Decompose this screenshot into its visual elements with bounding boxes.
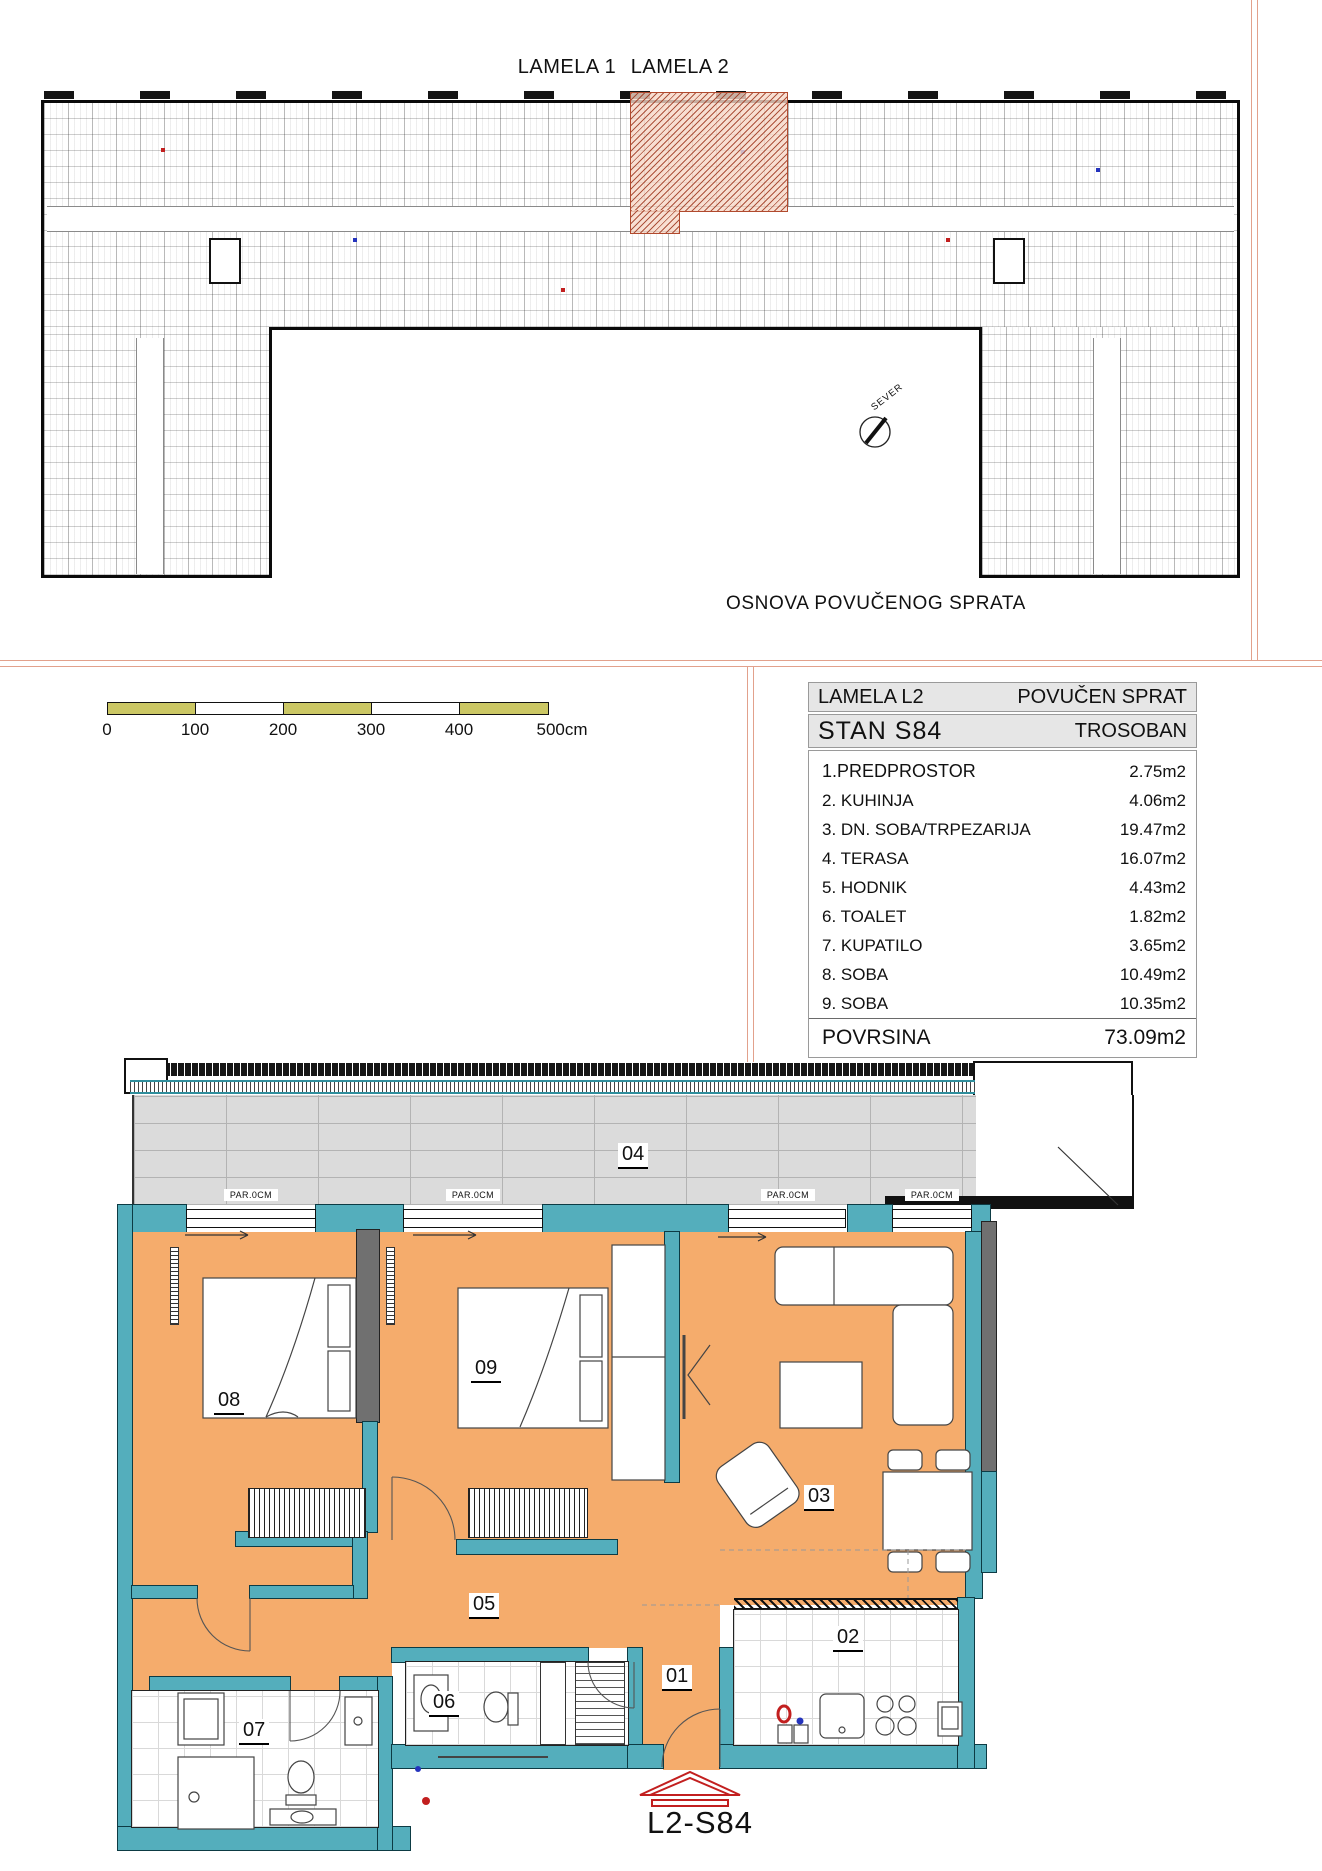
room-label-05: 05 [469, 1593, 499, 1619]
room-label-06: 06 [429, 1691, 459, 1717]
room-row: 9. SOBA10.35m2 [809, 989, 1196, 1018]
room-name: 2. KUHINJA [822, 786, 914, 815]
frame-line [753, 666, 754, 1062]
room-row: 2. KUHINJA4.06m2 [809, 786, 1196, 815]
room-label-08: 08 [214, 1389, 244, 1415]
room-row: 7. KUPATILO3.65m2 [809, 931, 1196, 960]
room-row: 4. TERASA16.07m2 [809, 844, 1196, 873]
room-label-04: 04 [618, 1143, 648, 1169]
room-row: 6. TOALET1.82m2 [809, 902, 1196, 931]
fixture-dot [161, 148, 165, 152]
apartment-info-table: LAMELA L2 POVUČEN SPRAT STAN S84 TROSOBA… [808, 682, 1197, 1058]
drawing-title: OSNOVA POVUČENOG SPRATA [700, 593, 1052, 615]
total-label: POVRSINA [822, 1026, 931, 1050]
total-row: POVRSINA 73.09m2 [809, 1018, 1196, 1057]
room-area: 10.35m2 [1120, 989, 1186, 1018]
scale-segment [371, 702, 461, 715]
frame-line [0, 660, 1322, 661]
furniture-layer [118, 1057, 1140, 1857]
room-area: 10.49m2 [1120, 960, 1186, 989]
fixture-dot [561, 288, 565, 292]
scale-tick-label: 300 [326, 720, 416, 740]
scale-tick-label: 500cm [507, 720, 617, 740]
room-row: 3. DN. SOBA/TRPEZARIJA19.47m2 [809, 815, 1196, 844]
room-label-07: 07 [239, 1719, 269, 1745]
room-name: 6. TOALET [822, 902, 906, 931]
scale-tick-label: 100 [150, 720, 240, 740]
room-name: 7. KUPATILO [822, 931, 922, 960]
room-label-09: 09 [471, 1357, 501, 1383]
fixture-dot [353, 238, 357, 242]
lamela-name: LAMELA L2 [818, 686, 924, 709]
sprat-name: POVUČEN SPRAT [1017, 686, 1187, 709]
corridor-right-wing [1093, 338, 1121, 574]
label-lamela-1: LAMELA 1 [517, 56, 617, 79]
stan-name: STAN S84 [818, 717, 942, 746]
frame-line [0, 666, 1322, 667]
room-area: 2.75m2 [1129, 757, 1186, 786]
fixture-dot [946, 238, 950, 242]
room-name: 9. SOBA [822, 989, 888, 1018]
apartment-plan: PAR.0CM PAR.0CM PAR.0CM PAR.0CM [118, 1057, 1140, 1857]
scale-tick-label: 0 [62, 720, 152, 740]
highlighted-unit-s84 [630, 92, 788, 212]
label-lamela-2: LAMELA 2 [630, 56, 730, 79]
fixture-dot [1096, 168, 1100, 172]
frame-line [1251, 0, 1252, 661]
room-row: 1.PREDPROSTOR2.75m2 [809, 757, 1196, 786]
apartment-type: TROSOBAN [1075, 720, 1187, 743]
room-name: 3. DN. SOBA/TRPEZARIJA [822, 815, 1031, 844]
room-area: 3.65m2 [1129, 931, 1186, 960]
table-header-row: LAMELA L2 POVUČEN SPRAT [808, 682, 1197, 712]
building-overview [41, 88, 1240, 580]
room-area: 1.82m2 [1129, 902, 1186, 931]
scale-segment [283, 702, 373, 715]
room-row: 5. HODNIK4.43m2 [809, 873, 1196, 902]
room-area: 19.47m2 [1120, 815, 1186, 844]
scale-segment [107, 702, 197, 715]
corridor-left-wing [136, 338, 164, 574]
room-name: 5. HODNIK [822, 873, 907, 902]
total-area: 73.09m2 [1104, 1026, 1186, 1050]
stair-core-right [993, 238, 1025, 284]
highlighted-unit-s84-extension [630, 210, 680, 234]
room-area: 4.43m2 [1129, 873, 1186, 902]
scale-tick-label: 200 [238, 720, 328, 740]
frame-line [747, 666, 748, 1062]
room-list: 1.PREDPROSTOR2.75m2 2. KUHINJA4.06m2 3. … [808, 750, 1197, 1058]
room-label-02: 02 [833, 1626, 863, 1652]
room-label-01: 01 [662, 1665, 692, 1691]
unit-code-label: L2-S84 [610, 1805, 790, 1841]
scale-segment [459, 702, 549, 715]
frame-line [1257, 0, 1258, 661]
scale-bar: 0 100 200 300 400 500cm [107, 702, 667, 747]
room-row: 8. SOBA10.49m2 [809, 960, 1196, 989]
room-area: 16.07m2 [1120, 844, 1186, 873]
table-header-row: STAN S84 TROSOBAN [808, 714, 1197, 748]
room-name: 4. TERASA [822, 844, 909, 873]
room-area: 4.06m2 [1129, 786, 1186, 815]
scale-tick-label: 400 [414, 720, 504, 740]
room-name: 8. SOBA [822, 960, 888, 989]
floorplan-sheet: LAMELA 1 LAMELA 2 SEVER OSNOVA POVUČENOG… [0, 0, 1322, 1871]
scale-segment [195, 702, 285, 715]
stair-core-left [209, 238, 241, 284]
room-name: 1.PREDPROSTOR [822, 757, 976, 786]
room-label-03: 03 [804, 1485, 834, 1511]
